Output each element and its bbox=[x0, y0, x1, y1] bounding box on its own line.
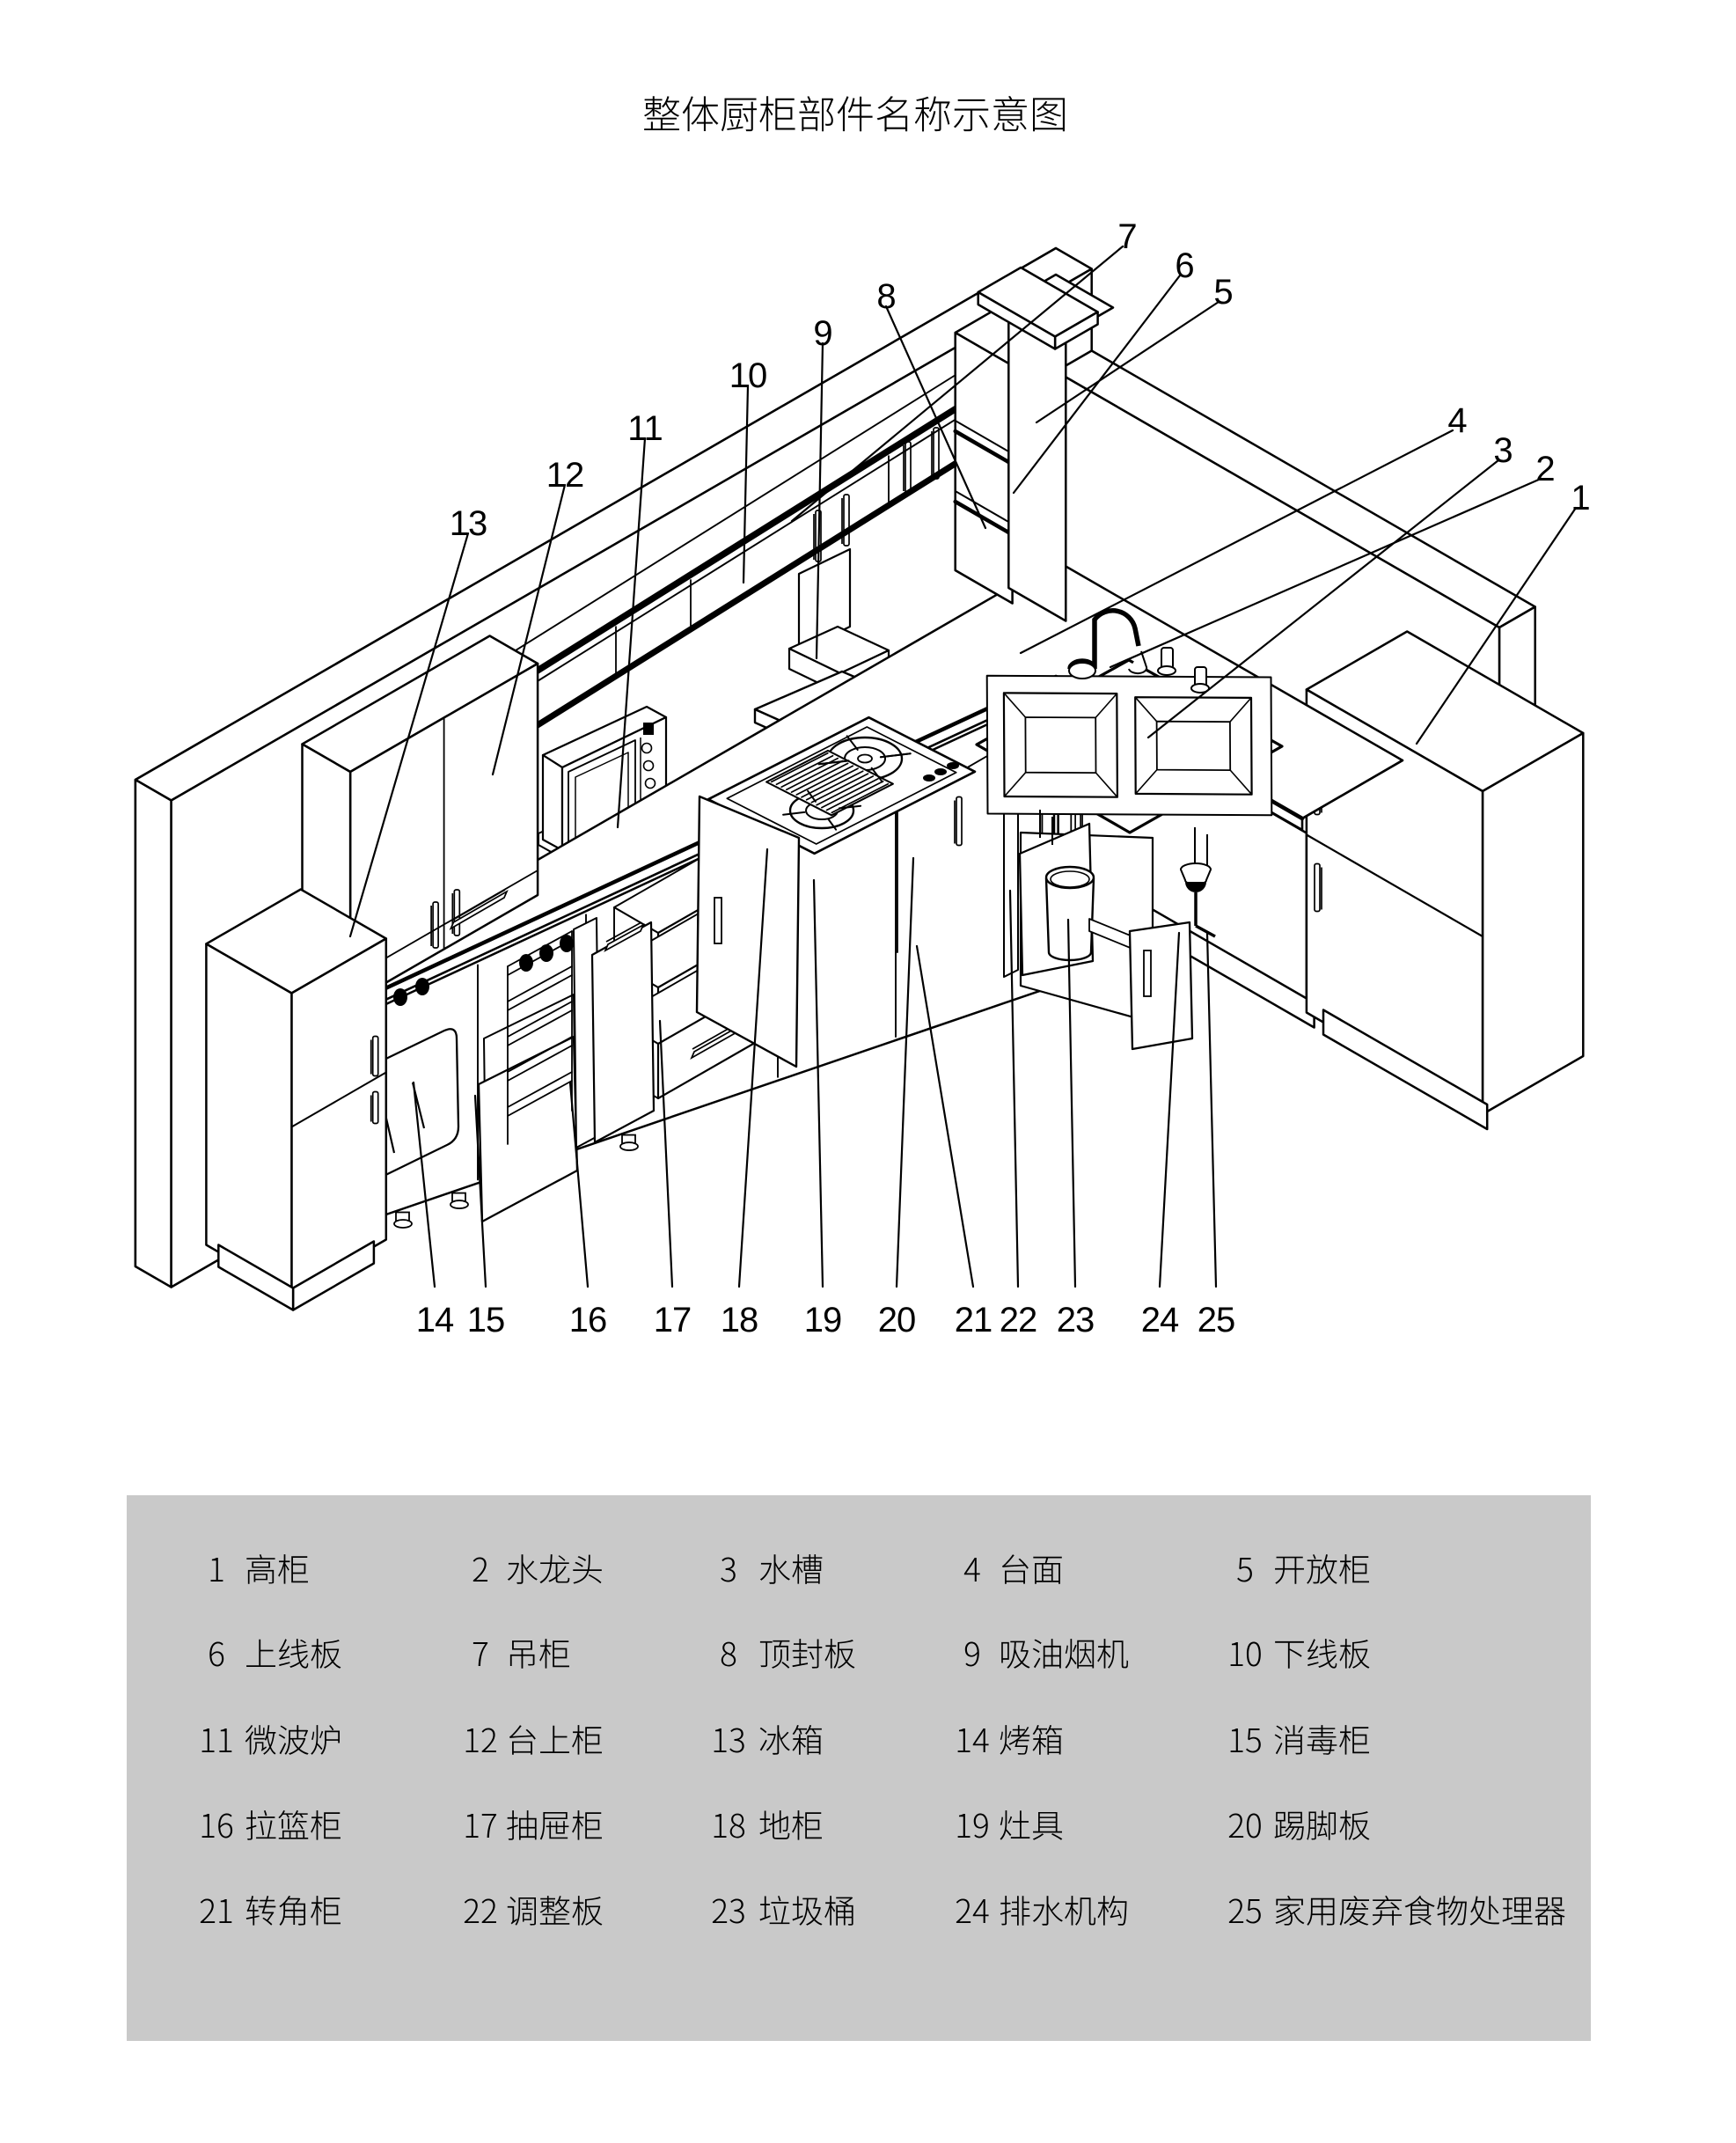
svg-text:11: 11 bbox=[627, 409, 663, 448]
svg-text:21: 21 bbox=[955, 1301, 993, 1339]
svg-text:8: 8 bbox=[876, 277, 895, 316]
svg-text:13: 13 bbox=[450, 504, 487, 543]
svg-text:9: 9 bbox=[813, 314, 831, 353]
svg-text:19: 19 bbox=[804, 1301, 842, 1339]
svg-text:10: 10 bbox=[729, 356, 767, 395]
svg-text:17: 17 bbox=[654, 1301, 692, 1339]
svg-text:18: 18 bbox=[721, 1301, 758, 1339]
svg-text:16: 16 bbox=[569, 1301, 607, 1339]
svg-text:6: 6 bbox=[1175, 246, 1193, 285]
svg-text:24: 24 bbox=[1141, 1301, 1179, 1339]
svg-text:14: 14 bbox=[416, 1301, 454, 1339]
svg-text:4: 4 bbox=[1447, 401, 1467, 440]
svg-text:23: 23 bbox=[1057, 1301, 1095, 1339]
svg-text:7: 7 bbox=[1117, 217, 1136, 256]
svg-text:2: 2 bbox=[1535, 450, 1554, 488]
svg-text:12: 12 bbox=[546, 456, 584, 495]
svg-text:3: 3 bbox=[1493, 431, 1512, 470]
svg-text:22: 22 bbox=[1000, 1301, 1037, 1339]
svg-text:25: 25 bbox=[1198, 1301, 1235, 1339]
svg-text:20: 20 bbox=[878, 1301, 916, 1339]
svg-text:1: 1 bbox=[1571, 479, 1589, 517]
svg-text:5: 5 bbox=[1213, 273, 1232, 312]
svg-text:15: 15 bbox=[467, 1301, 505, 1339]
